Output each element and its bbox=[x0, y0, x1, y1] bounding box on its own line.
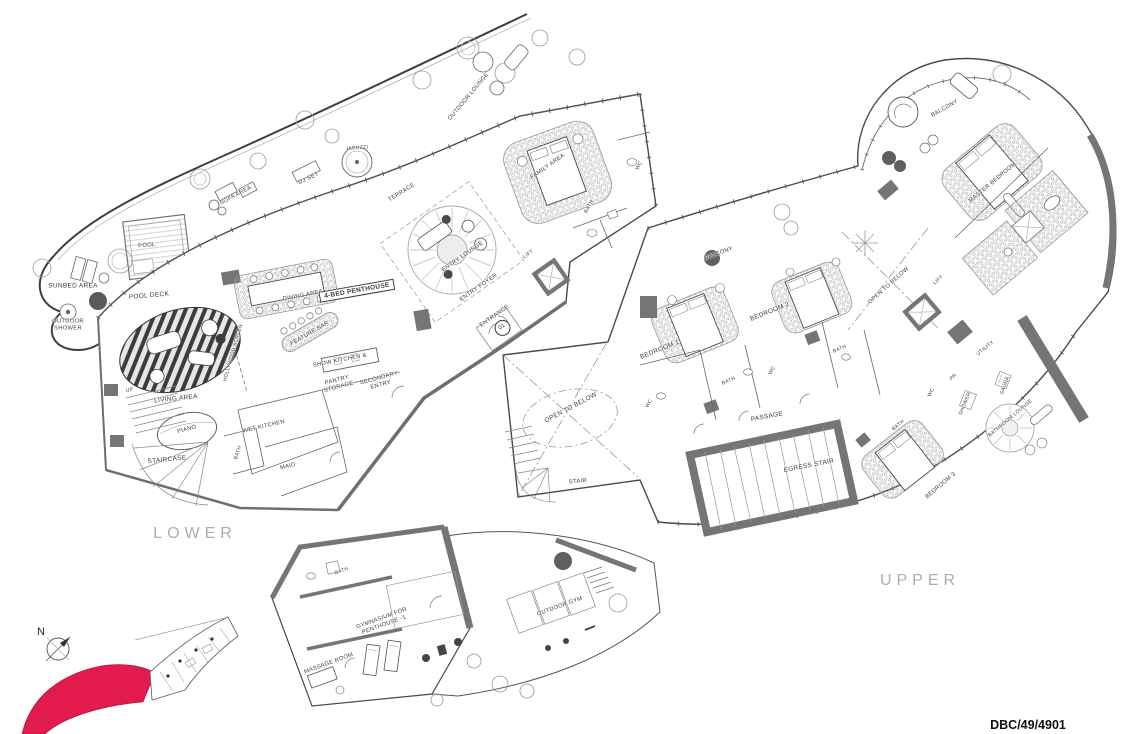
gym-outline bbox=[272, 527, 470, 706]
floor-tag-lower: LOWER bbox=[153, 525, 237, 543]
drawing-reference: DBC/49/4901 bbox=[990, 718, 1066, 732]
north-label: N bbox=[37, 626, 45, 638]
label-sunbed-area: SUNBED AREA bbox=[48, 282, 98, 289]
north-arrow bbox=[46, 637, 70, 661]
dark-planter bbox=[89, 292, 107, 310]
floorplan-sheet: OUTDOOR LOUNGE JACUZZI DJ SET SOFA AREA … bbox=[0, 0, 1141, 734]
floorplan-canvas bbox=[0, 0, 1141, 734]
keyplan-highlight-red bbox=[22, 665, 155, 734]
key-plan-drawing bbox=[22, 617, 238, 734]
gym-plan-drawing bbox=[272, 527, 660, 706]
label-outdoor-shower: OUTDOORSHOWER bbox=[52, 318, 84, 331]
floor-tag-upper: UPPER bbox=[880, 572, 960, 590]
keyplan-building bbox=[150, 617, 238, 700]
